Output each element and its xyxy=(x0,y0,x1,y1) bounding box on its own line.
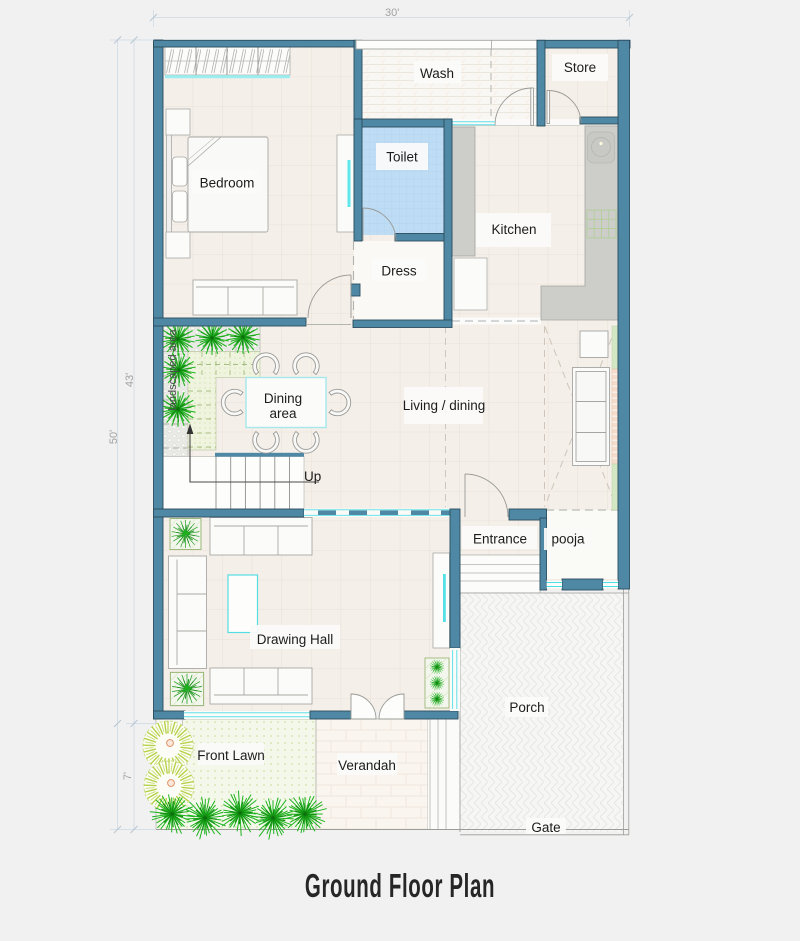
svg-text:Dining: Dining xyxy=(264,391,302,406)
svg-text:Toilet: Toilet xyxy=(386,150,418,165)
svg-text:Living / dining: Living / dining xyxy=(403,398,486,413)
svg-text:Gate: Gate xyxy=(531,820,560,835)
svg-text:50': 50' xyxy=(108,430,120,444)
svg-text:Dress: Dress xyxy=(381,264,417,279)
svg-text:Bedroom: Bedroom xyxy=(200,176,255,191)
svg-text:7': 7' xyxy=(122,772,134,780)
svg-text:Wash: Wash xyxy=(420,66,454,81)
svg-text:Entrance: Entrance xyxy=(473,532,527,547)
svg-text:Up: Up xyxy=(304,469,321,484)
svg-text:pooja: pooja xyxy=(551,532,585,547)
svg-text:Front Lawn: Front Lawn xyxy=(197,748,265,763)
svg-text:landscaped area: landscaped area xyxy=(167,328,179,410)
svg-text:43': 43' xyxy=(124,373,136,387)
svg-text:Drawing Hall: Drawing Hall xyxy=(257,632,334,647)
svg-text:Store: Store xyxy=(564,60,596,75)
svg-text:Verandah: Verandah xyxy=(338,758,396,773)
svg-text:Kitchen: Kitchen xyxy=(491,222,536,237)
svg-text:Porch: Porch xyxy=(509,700,544,715)
svg-text:30': 30' xyxy=(385,7,399,19)
svg-text:area: area xyxy=(269,406,297,421)
